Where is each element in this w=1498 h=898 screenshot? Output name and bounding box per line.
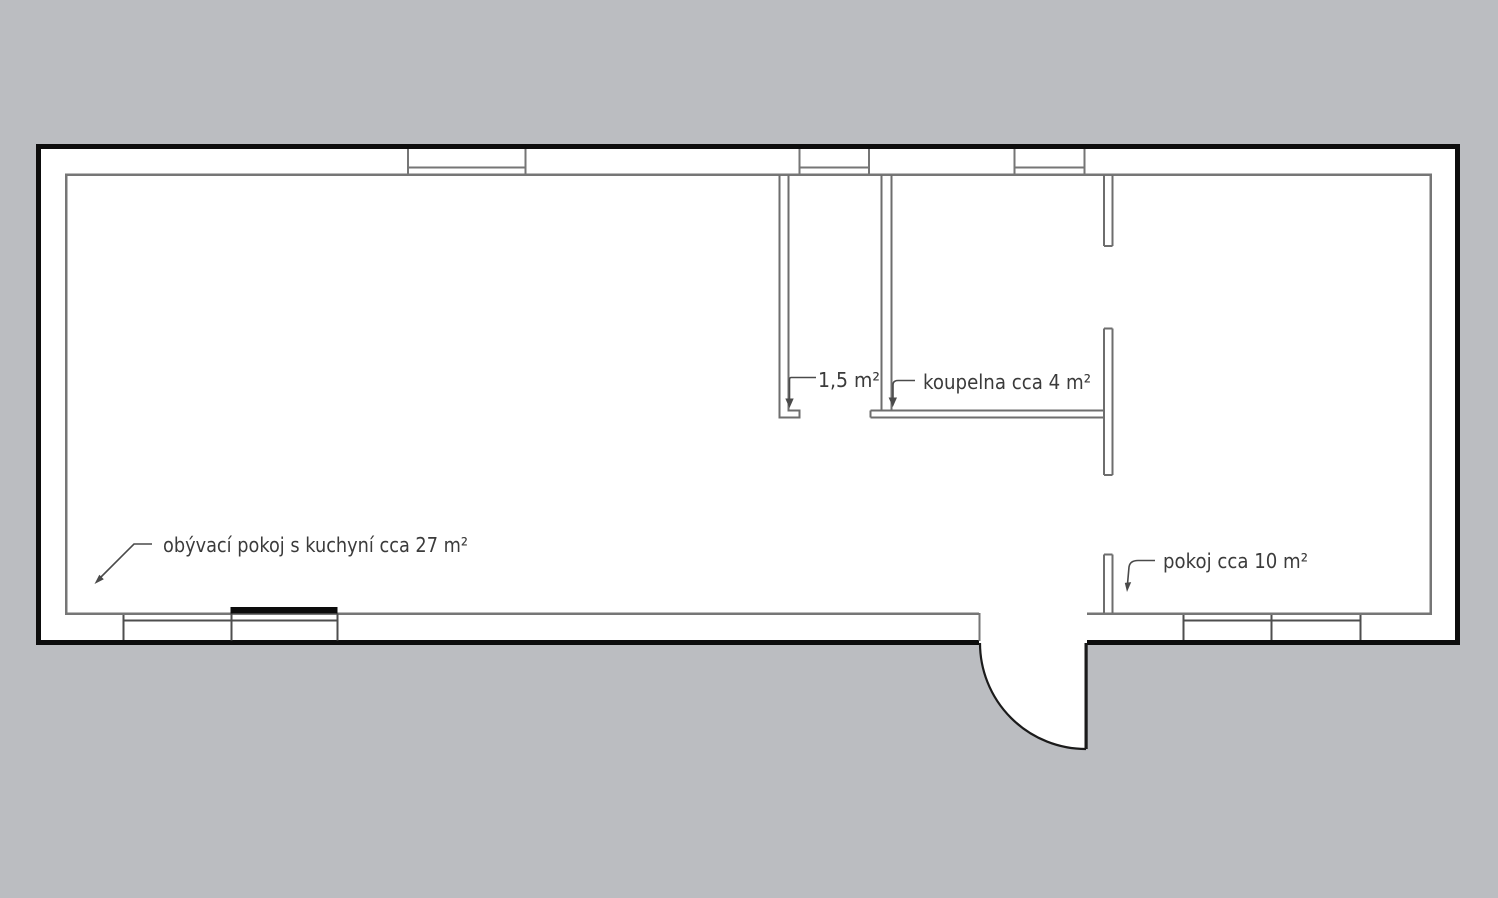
window-sill (1183, 620, 1362, 622)
window-sill (407, 167, 527, 169)
entry-door-leaf (1085, 643, 1088, 749)
inner-line-right (1430, 174, 1433, 616)
window-jamb (1271, 615, 1273, 640)
counter-bar (231, 607, 338, 614)
entry-door-recess (979, 613, 1087, 645)
window-sill (799, 167, 871, 169)
window-jamb (123, 615, 125, 640)
window-sill (123, 620, 339, 622)
label-living-room: obývací pokoj s kuchyní cca 27 m² (163, 533, 468, 557)
outer-wall-right (1455, 144, 1460, 645)
entry-door-swing-area (980, 643, 1086, 749)
label-room: pokoj cca 10 m² (1163, 549, 1308, 573)
label-bathroom: koupelna cca 4 m² (923, 370, 1091, 394)
inner-line-bottom-left (65, 613, 979, 616)
window-jamb (337, 614, 339, 641)
window-jamb (868, 149, 870, 174)
window-jamb (1360, 615, 1362, 640)
outer-wall-bottom-left (36, 640, 979, 645)
window-jamb (231, 614, 233, 641)
label-wc: 1,5 m² (818, 368, 880, 392)
inner-line-bottom-right (1087, 613, 1432, 616)
window-jamb (1183, 615, 1185, 640)
window-jamb (525, 149, 527, 174)
entry-door-jamb (979, 613, 981, 641)
window-jamb (407, 149, 409, 174)
floor-areas (36, 144, 1460, 749)
window-jamb (799, 149, 801, 174)
inner-line-left (65, 174, 68, 616)
outer-wall-left (36, 144, 41, 645)
floorplan-canvas: obývací pokoj s kuchyní cca 27 m² 1,5 m²… (0, 0, 1498, 898)
window-jamb (1014, 149, 1016, 174)
window-sill (1014, 167, 1086, 169)
inner-line-top (65, 174, 1432, 177)
outer-wall-bottom-right (1087, 640, 1460, 645)
outer-wall-top (36, 144, 1460, 149)
window-jamb (1084, 149, 1086, 174)
